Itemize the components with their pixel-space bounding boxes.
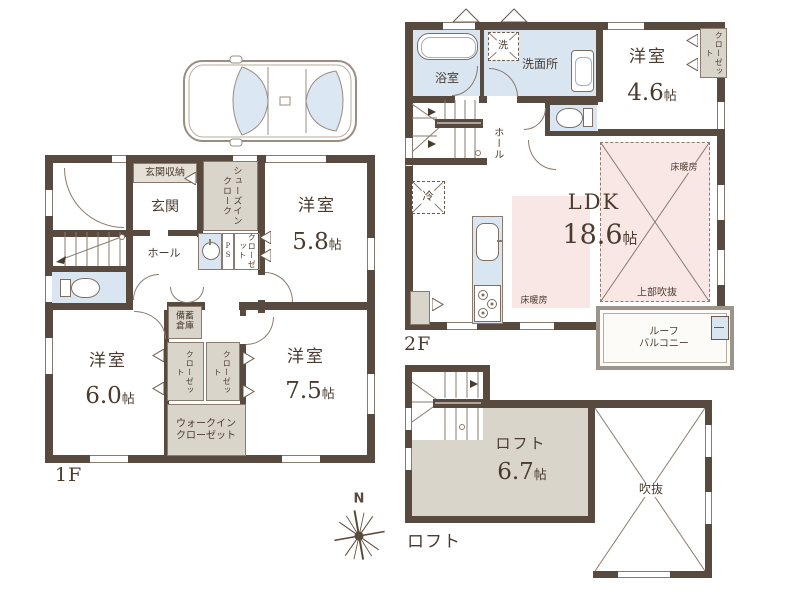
window-symbol xyxy=(608,22,644,30)
closet-right-label: クローゼット xyxy=(213,348,231,396)
window-symbol xyxy=(367,374,375,414)
wall xyxy=(405,516,595,523)
window-symbol xyxy=(717,250,725,285)
window-symbol xyxy=(717,185,725,220)
wall xyxy=(405,365,412,523)
wall xyxy=(483,400,595,408)
faucet-icon xyxy=(209,239,211,245)
vanity-sink-icon xyxy=(575,57,592,86)
hall-closet-label: クローゼット xyxy=(238,233,256,269)
washbasin-icon xyxy=(202,242,220,260)
door-arc xyxy=(528,140,556,170)
door-swing-marker xyxy=(152,349,164,362)
balcony-window-icon xyxy=(711,316,729,340)
room-7-5-size: 7.5帖 xyxy=(285,378,335,404)
window-symbol xyxy=(705,425,712,457)
refrigerator-label: 冷 xyxy=(421,191,436,204)
window-symbol xyxy=(45,338,53,374)
loft-room-size: 6.7帖 xyxy=(497,459,547,485)
wall xyxy=(133,230,150,236)
pipe-space-label: PS xyxy=(224,242,232,260)
entrance-storage-label: 玄関収納 xyxy=(145,167,185,179)
roof-balcony-label: ルーフバルコニー xyxy=(639,327,689,350)
washroom-label: 洗面所 xyxy=(522,58,558,72)
loft-room-name: ロフト xyxy=(495,435,546,452)
door-arc xyxy=(265,272,293,302)
storage-2f xyxy=(410,291,430,325)
door-arc xyxy=(134,311,166,339)
floor-heating-left-label: 床暖房 xyxy=(520,296,547,306)
door-swing-marker xyxy=(432,298,444,311)
room-5-8-name: 洋室 xyxy=(298,197,336,217)
window-symbol xyxy=(367,238,375,270)
wall xyxy=(596,22,603,102)
door-swing-marker xyxy=(243,385,255,398)
door-swing-marker xyxy=(243,352,255,365)
wall xyxy=(405,365,490,372)
room-4-6-closet-label: クローゼット xyxy=(705,30,723,76)
ldk-name: LDK xyxy=(568,190,620,214)
door-swing-marker xyxy=(184,172,196,185)
roof-vent-icon xyxy=(500,8,528,23)
closet-left-label: クローゼット xyxy=(176,348,194,396)
hall-label: ホール xyxy=(148,248,181,261)
entrance-label: 玄関 xyxy=(151,199,179,215)
floor-plan-canvas: 玄関収納 玄関 シューズインクローク 洋室 5.8帖 ホール PS クローゼット… xyxy=(0,0,800,600)
room-6-0-name: 洋室 xyxy=(89,352,127,372)
stairs-2f xyxy=(412,100,483,158)
bathtub-inner xyxy=(421,37,476,58)
window-symbol xyxy=(443,22,475,30)
wall xyxy=(545,131,598,136)
wall xyxy=(598,129,725,136)
roof-vent-icon xyxy=(452,8,480,23)
laundry-label: 洗 xyxy=(496,40,510,52)
wall xyxy=(593,400,712,408)
window-symbol xyxy=(90,455,128,463)
room-6-0-size: 6.0帖 xyxy=(85,383,135,409)
wall xyxy=(126,272,133,305)
window-symbol xyxy=(266,155,326,163)
stairs-1f xyxy=(52,232,126,266)
floor1-label: 1F xyxy=(55,464,82,486)
window-symbol xyxy=(405,448,412,470)
door-swing-marker xyxy=(152,382,164,395)
ldk-size: 18.6帖 xyxy=(562,219,637,250)
hall-2f-label: ホール xyxy=(491,123,503,163)
wall xyxy=(588,400,595,523)
window-symbol xyxy=(520,322,554,330)
door-swing-marker xyxy=(686,58,698,71)
kitchen-sink-icon xyxy=(476,223,499,261)
door-arc xyxy=(524,108,546,130)
door-arc xyxy=(187,287,204,303)
toilet-tank-icon xyxy=(60,279,71,297)
floor2-label: 2F xyxy=(404,333,431,355)
stove-burners-icon xyxy=(474,285,501,322)
wall xyxy=(126,155,133,237)
void-above-label: 上部吹抜 xyxy=(635,287,679,299)
door-swing-marker xyxy=(259,249,271,262)
door-arc xyxy=(246,317,274,345)
door-swing-marker xyxy=(259,231,271,244)
window-symbol xyxy=(405,408,412,430)
door-opening xyxy=(205,302,239,310)
door-opening xyxy=(133,302,167,310)
window-symbol xyxy=(618,571,670,578)
car-icon xyxy=(180,55,360,147)
door-swing-marker xyxy=(686,34,698,47)
loft-floor-label: ロフト xyxy=(407,527,461,552)
faucet-icon xyxy=(497,240,502,242)
wall xyxy=(405,22,413,330)
floor-heating-right-label: 床暖房 xyxy=(668,163,699,173)
toilet-icon xyxy=(556,108,583,128)
door-arc xyxy=(64,168,124,228)
walk-in-closet-label: ウォークインクローゼット xyxy=(176,419,236,442)
room-4-6-size: 4.6帖 xyxy=(627,80,677,106)
compass-icon: N xyxy=(330,492,390,564)
window-symbol xyxy=(282,455,320,463)
wall xyxy=(168,230,200,236)
door-opening xyxy=(487,96,517,103)
stock-storage-label: 備蓄倉庫 xyxy=(176,312,194,333)
stairs-loft xyxy=(412,372,483,440)
room-5-8-size: 5.8帖 xyxy=(292,229,342,255)
shoes-in-closet-label: シューズインクローク xyxy=(221,164,242,228)
room-7-5-name: 洋室 xyxy=(287,348,325,368)
toilet-tank-icon xyxy=(583,108,593,127)
void-label: 吹抜 xyxy=(637,483,665,497)
window-symbol xyxy=(705,492,712,524)
toilet-icon xyxy=(71,278,100,298)
room-4-6-name: 洋室 xyxy=(629,48,667,68)
window-symbol xyxy=(45,190,53,216)
wall xyxy=(405,158,487,165)
door-arc xyxy=(133,274,159,300)
door-arc xyxy=(170,287,187,303)
